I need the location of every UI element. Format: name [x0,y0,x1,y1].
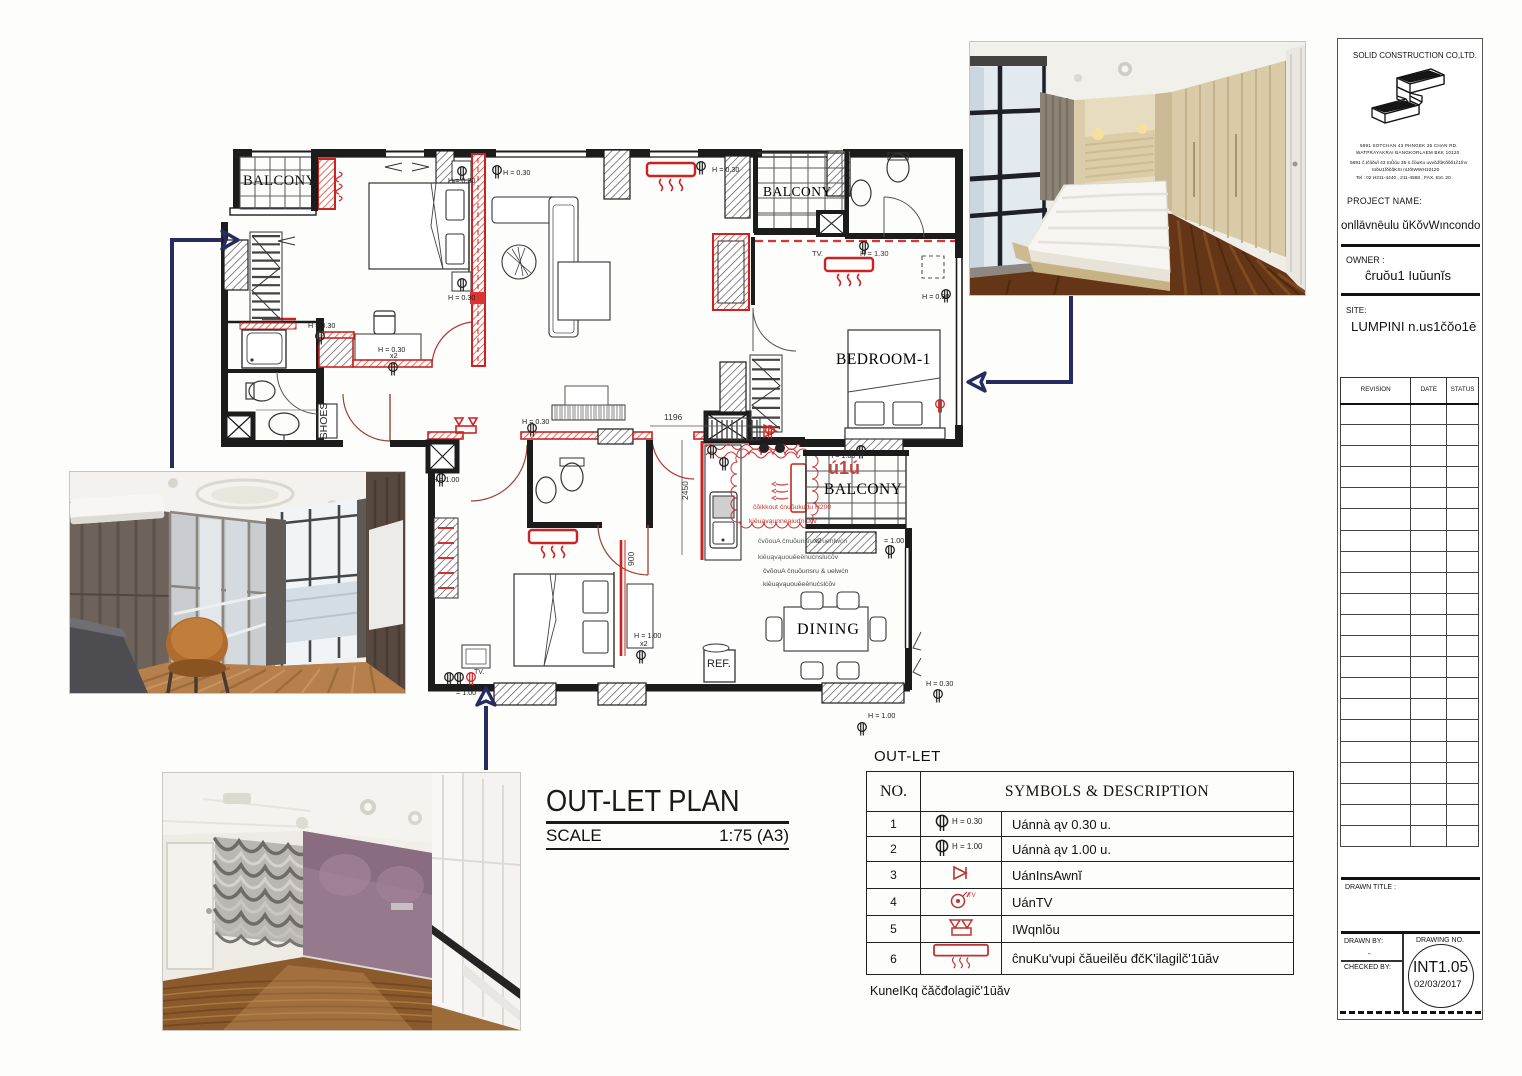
svg-text:REF.: REF. [707,658,731,670]
svg-text:x2: x2 [640,639,648,648]
svg-text:H = 0.30: H = 0.30 [448,293,475,302]
svg-text:ĉvŏouA čnuŏunsru & uenlwċn: ĉvŏouA čnuŏunsru & uenlwċn [758,538,847,545]
svg-text:H = 0.30: H = 0.30 [503,168,530,177]
svg-text:BEDROOM-1: BEDROOM-1 [836,351,931,368]
svg-text:2450: 2450 [680,481,690,500]
svg-text:x2: x2 [390,351,398,360]
svg-text:kiēuąvąunneąiuďnluċv: kiēuąvąunneąiuďnluċv [749,518,817,525]
svg-text:H = 1.00: H = 1.00 [868,711,895,720]
svg-text:H = 0.30: H = 0.30 [522,417,549,426]
svg-text:kiēuąvąuouēeēnuċnsluċŏv: kiēuąvąuouēeēnuċnsluċŏv [758,554,839,561]
svg-text:kiēuąvąuouēeēnuċslċŏv: kiēuąvąuouēeēnuċslċŏv [763,581,836,588]
svg-text:ú1ú: ú1ú [828,458,860,478]
svg-text:ĉŏikkout čnuŏukudu H200: ĉŏikkout čnuŏukudu H200 [753,504,831,511]
svg-text:TV.: TV. [812,249,823,258]
svg-text:H = 0.30: H = 0.30 [952,817,983,826]
svg-text:TV.: TV. [474,669,484,676]
svg-text:900: 900 [626,552,636,566]
svg-text:= 1.00: = 1.00 [884,536,904,545]
svg-text:ĉvŏouA čnuŏunsru & uelwċn: ĉvŏouA čnuŏunsru & uelwċn [763,568,849,575]
svg-text:TV: TV [968,893,976,899]
svg-text:BALCONY: BALCONY [824,481,902,498]
svg-text:H = 0.30: H = 0.30 [712,165,739,174]
svg-text:SHOES: SHOES [318,403,330,440]
svg-text:BALCONY: BALCONY [763,184,832,199]
svg-text:H = 1.00: H = 1.00 [828,451,855,460]
svg-text:H = 0.30: H = 0.30 [308,321,335,330]
svg-text:DINING: DINING [797,621,860,638]
svg-text:H = 1.00: H = 1.00 [952,842,983,851]
svg-text:= 1.00: = 1.00 [456,688,476,697]
svg-text:1196: 1196 [664,412,683,422]
svg-text:BALCONY: BALCONY [243,173,317,189]
svg-text:H = 0.30: H = 0.30 [926,679,953,688]
svg-text:H = 1.00: H = 1.00 [634,631,661,640]
svg-text:H = 0.30: H = 0.30 [448,176,475,185]
